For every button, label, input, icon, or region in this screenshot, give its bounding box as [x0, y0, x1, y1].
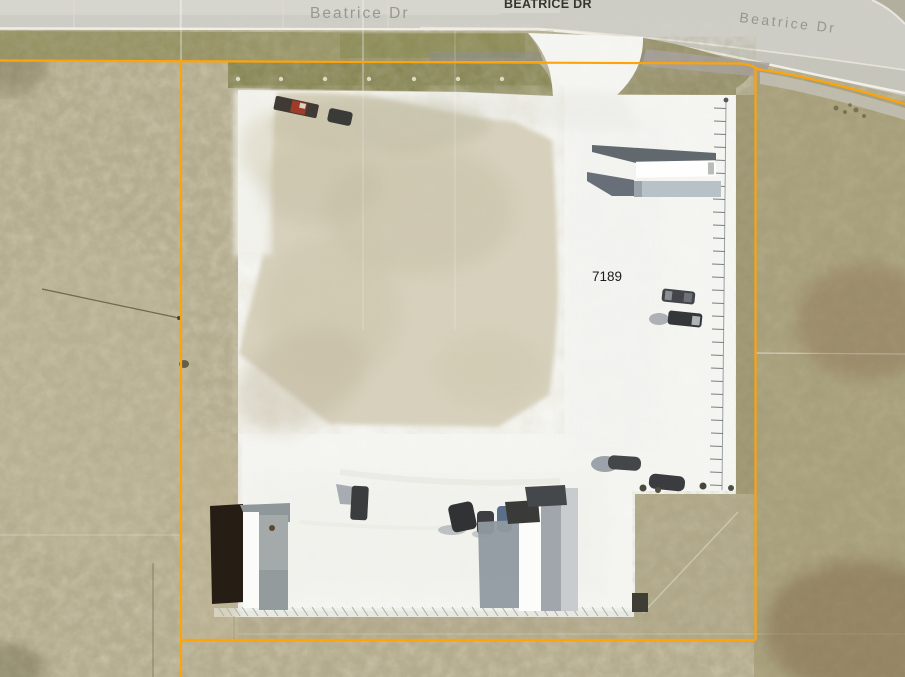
- svg-text:BEATRICE DR: BEATRICE DR: [504, 0, 592, 11]
- svg-text:Beatrice Dr: Beatrice Dr: [310, 5, 410, 22]
- svg-text:7189: 7189: [592, 269, 622, 284]
